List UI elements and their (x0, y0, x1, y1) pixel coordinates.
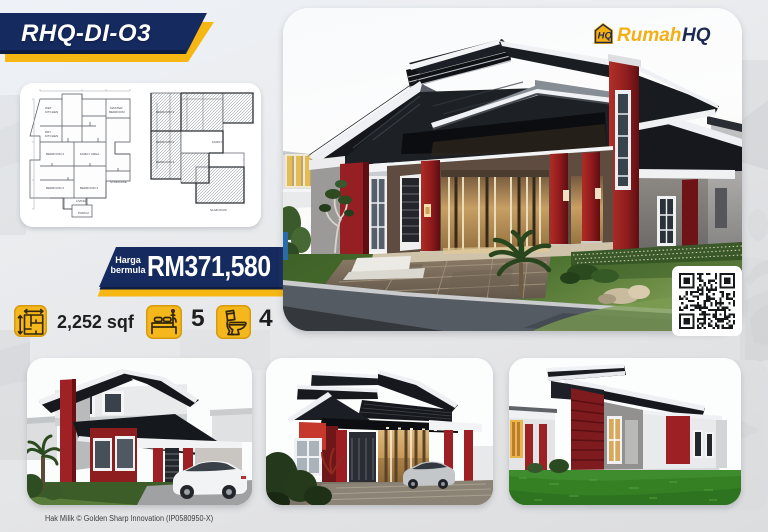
svg-text:FAMILY: FAMILY (212, 140, 222, 144)
svg-text:LIVING: LIVING (76, 199, 87, 203)
svg-text:SLAB ROOF: SLAB ROOF (210, 208, 227, 212)
svg-text:Rumah: Rumah (617, 25, 681, 46)
svg-text:FAMILY AREA: FAMILY AREA (80, 152, 99, 156)
svg-text:BEDROOM 4: BEDROOM 4 (46, 152, 64, 156)
svg-text:STAIRCASE: STAIRCASE (110, 180, 127, 184)
svg-text:BEDROOM 2: BEDROOM 2 (46, 186, 64, 190)
svg-text:HQ: HQ (682, 25, 711, 46)
svg-text:BEDROOM 2: BEDROOM 2 (156, 140, 174, 144)
svg-text:BEDROOM 3: BEDROOM 3 (156, 160, 174, 164)
svg-text:BEDROOM: BEDROOM (109, 110, 125, 114)
svg-text:PORCH: PORCH (78, 211, 89, 215)
svg-text:HQ: HQ (598, 31, 613, 42)
svg-text:KITCHEN: KITCHEN (45, 134, 58, 138)
svg-text:KITCHEN: KITCHEN (45, 110, 58, 114)
svg-text:BEDROOM 3: BEDROOM 3 (80, 186, 98, 190)
svg-text:BEDROOM 4: BEDROOM 4 (156, 110, 174, 114)
